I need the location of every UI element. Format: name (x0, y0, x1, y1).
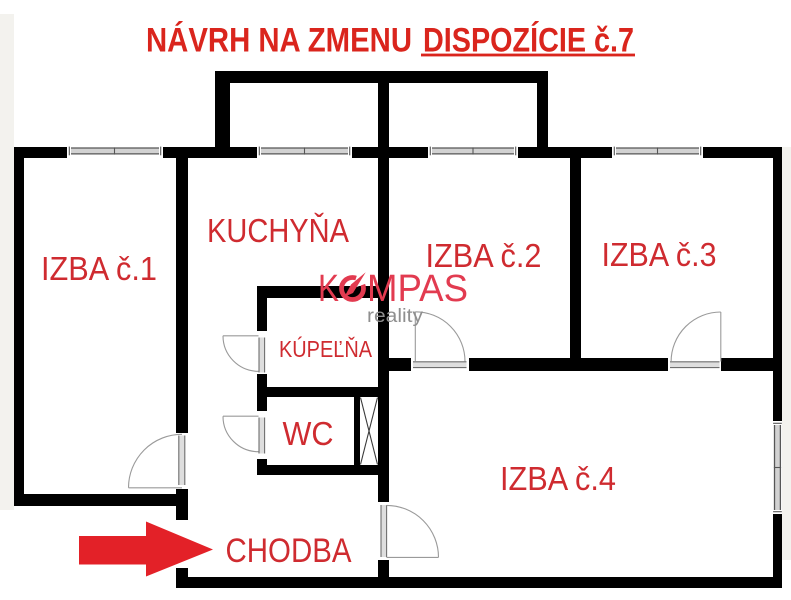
svg-text:WC: WC (283, 415, 334, 452)
svg-text:CHODBA: CHODBA (226, 532, 352, 570)
svg-text:MPAS: MPAS (367, 268, 468, 310)
svg-text:IZBA č.1: IZBA č.1 (41, 250, 157, 287)
svg-text:K: K (318, 268, 339, 310)
svg-text:IZBA č.4: IZBA č.4 (500, 460, 616, 497)
svg-text:NÁVRH NA ZMENU: NÁVRH NA ZMENU (146, 22, 412, 60)
svg-text:KUCHYŇA: KUCHYŇA (207, 212, 349, 249)
svg-text:IZBA č.3: IZBA č.3 (602, 236, 717, 273)
svg-text:KÚPEĽŇA: KÚPEĽŇA (279, 336, 373, 362)
svg-text:reality: reality (367, 306, 424, 327)
